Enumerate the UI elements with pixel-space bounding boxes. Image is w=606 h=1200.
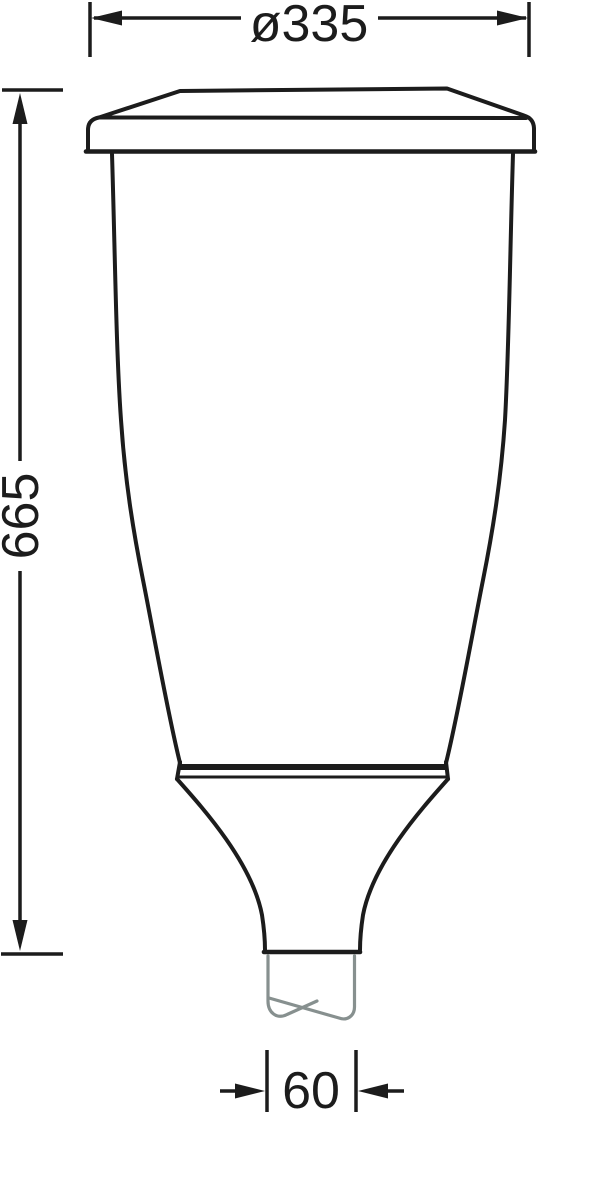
height-arrowhead-bottom-icon [13,920,28,951]
dimension-diameter-top: ø335 [90,0,529,57]
body-side-left [112,154,180,763]
spigot-arrowhead-left-icon [235,1084,265,1099]
diameter-arrowhead-left-icon [91,11,122,26]
dimension-spigot-bottom: 60 [220,1050,404,1120]
diameter-arrowhead-right-icon [497,11,528,26]
cone-side-right [360,779,448,950]
dimension-height-left: 665 [0,90,63,954]
pole-break-diagonal-and-right-side [269,956,355,1019]
diameter-dim-label: ø335 [250,0,369,53]
height-arrowhead-top-icon [13,93,28,124]
pole-left-side-and-break-loop [268,956,317,1016]
body-side-right [446,154,513,763]
cone-side-left [177,779,265,950]
luminaire-outline [86,89,535,953]
dimension-drawing-svg: ø335 665 [0,0,606,1200]
spigot-dim-label: 60 [282,1062,340,1120]
height-dim-label: 665 [0,473,50,560]
spigot-arrowhead-right-icon [358,1084,388,1099]
technical-drawing-page: ø335 665 [0,0,606,1200]
pole-break [268,956,355,1019]
cap-top-front-edge [99,118,526,119]
